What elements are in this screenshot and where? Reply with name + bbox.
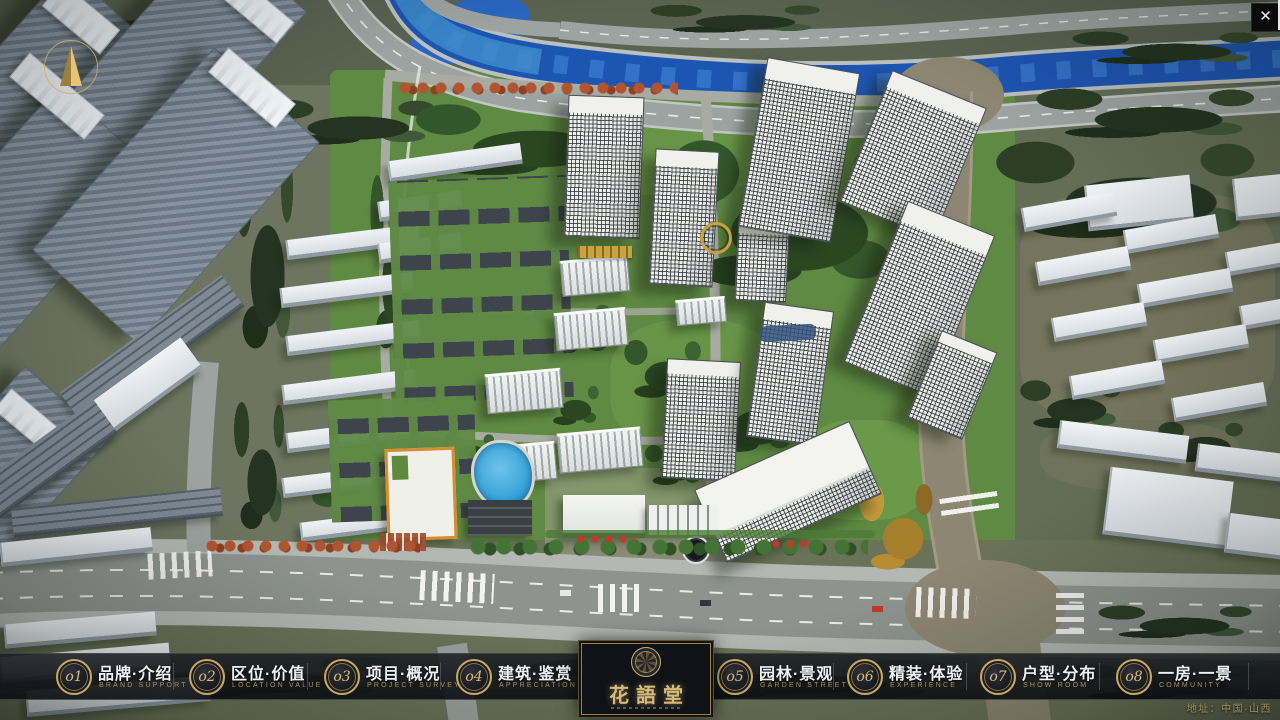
nav-item-brand-intro[interactable]: o1 品牌·介绍 BRAND SUPPORT bbox=[56, 654, 186, 699]
nav-separator bbox=[966, 663, 967, 690]
road-details bbox=[0, 0, 1280, 720]
nav-item-architecture[interactable]: o4 建筑·鉴赏 APPRECIATION bbox=[456, 654, 586, 699]
brand-name: 花語堂 bbox=[579, 679, 713, 708]
nav-number-badge: o1 bbox=[56, 659, 92, 695]
nav-separator bbox=[307, 663, 308, 690]
nav-separator bbox=[1099, 663, 1100, 690]
nav-item-community[interactable]: o8 一房·一景 COMMUNITY bbox=[1116, 654, 1246, 699]
close-button[interactable]: ✕ bbox=[1251, 3, 1280, 32]
compass-icon bbox=[44, 40, 98, 94]
nav-number-badge: o3 bbox=[324, 659, 360, 695]
nav-number-badge: o6 bbox=[847, 659, 883, 695]
nav-separator bbox=[833, 663, 834, 690]
nav-sublabel: COMMUNITY bbox=[1159, 682, 1279, 689]
project-address: 地址：中国·山西 bbox=[1187, 700, 1272, 715]
nav-item-project-survey[interactable]: o3 项目·概况 PROJECT SURVEY bbox=[324, 654, 454, 699]
nav-separator bbox=[440, 663, 441, 690]
nav-number-badge: o2 bbox=[189, 659, 225, 695]
nav-number-badge: o7 bbox=[980, 659, 1016, 695]
nav-item-experience[interactable]: o6 精装·体验 EXPERIENCE bbox=[847, 654, 977, 699]
brand-divider bbox=[611, 707, 681, 709]
nav-item-garden-landscape[interactable]: o5 园林·景观 GARDEN STREET bbox=[717, 654, 847, 699]
nav-separator bbox=[1248, 663, 1249, 690]
brand-seal-icon bbox=[631, 647, 661, 677]
nav-number-badge: o5 bbox=[717, 659, 753, 695]
nav-number-badge: o8 bbox=[1116, 659, 1152, 695]
nav-item-floorplans[interactable]: o7 户型·分布 SHOW ROOM bbox=[980, 654, 1110, 699]
brand-plaque[interactable]: 花語堂 bbox=[578, 640, 714, 718]
masterplan-view[interactable]: ✕ o1 品牌·介绍 BRAND SUPPORT o2 区位·价值 LOCATI… bbox=[0, 0, 1280, 720]
nav-number-badge: o4 bbox=[456, 659, 492, 695]
nav-item-location-value[interactable]: o2 区位·价值 LOCATION VALUE bbox=[189, 654, 319, 699]
nav-label: 一房·一景 bbox=[1158, 660, 1268, 684]
nav-separator bbox=[173, 663, 174, 690]
